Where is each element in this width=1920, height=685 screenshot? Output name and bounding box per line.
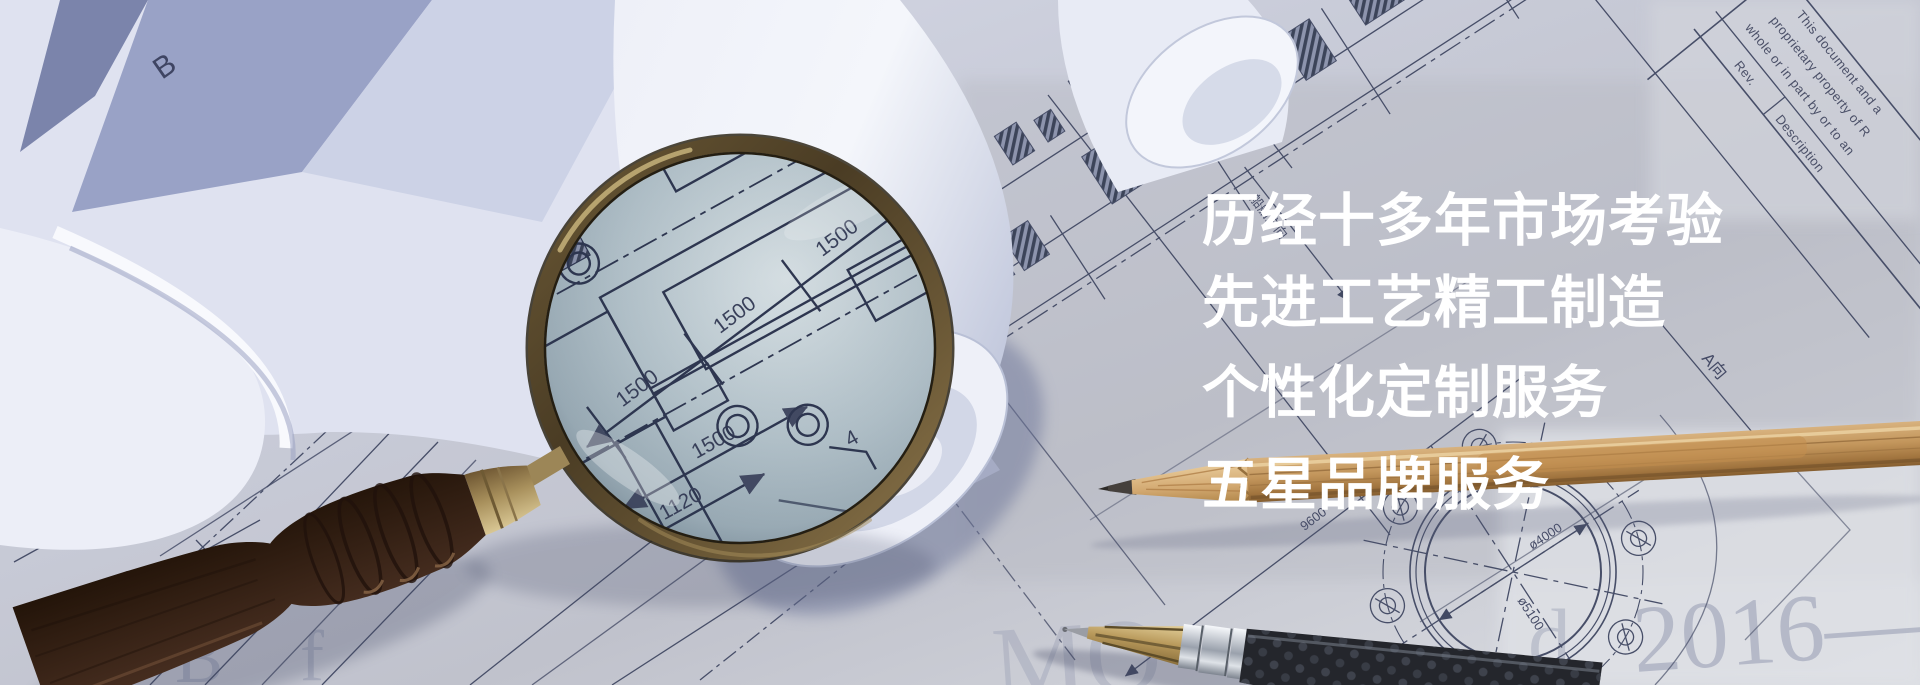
- headline-line-3: 个性化定制服务: [1202, 365, 1608, 422]
- hero-banner: B f MO d 2016—: [0, 0, 1920, 685]
- watermark-year-2016: 2016—: [1629, 566, 1920, 685]
- blueprint-photo-scene: B f MO d 2016—: [0, 0, 1920, 685]
- headline-line-4: 五星品牌服务: [1202, 457, 1550, 514]
- headline-line-1: 历经十多年市场考验: [1202, 193, 1724, 250]
- headline-line-2: 先进工艺精工制造: [1202, 275, 1666, 332]
